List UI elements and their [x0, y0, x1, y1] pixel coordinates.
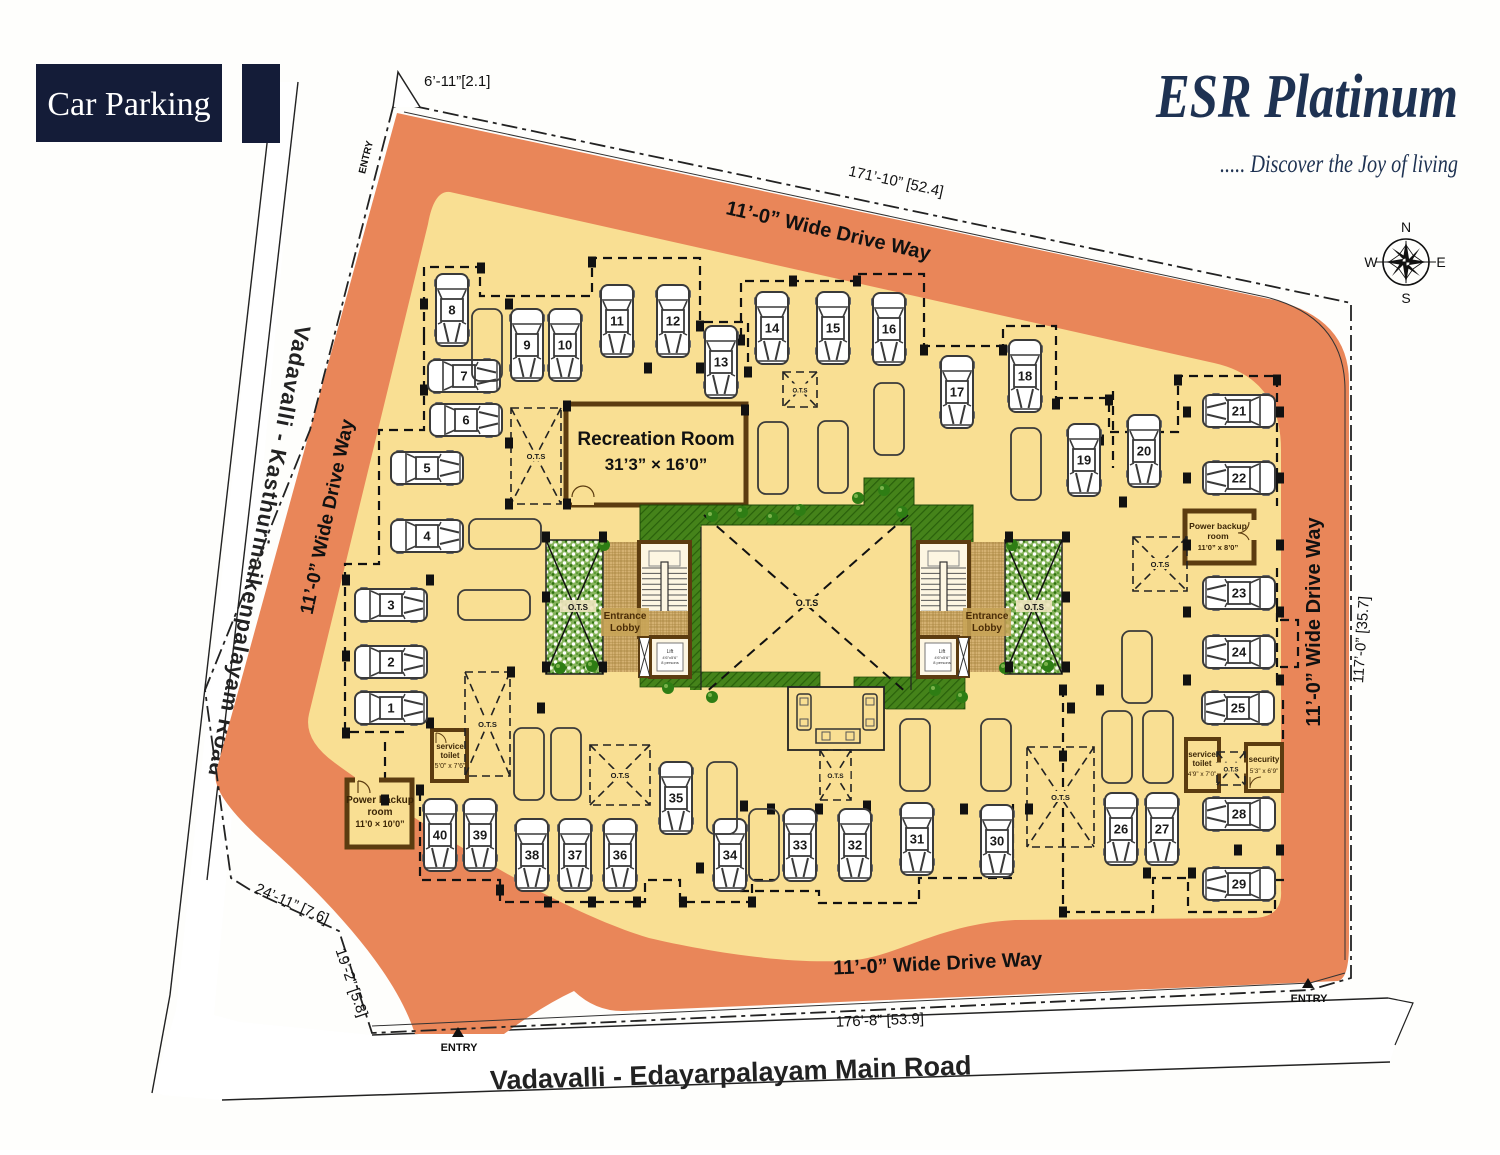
svg-text:20: 20: [1137, 444, 1151, 459]
svg-text:35: 35: [669, 791, 683, 806]
svg-text:32: 32: [848, 838, 862, 853]
svg-text:176’-8” [53.9]: 176’-8” [53.9]: [835, 1010, 924, 1031]
svg-text:O.T.S: O.T.S: [796, 598, 819, 608]
svg-text:27: 27: [1155, 822, 1169, 837]
svg-text:service: service: [436, 742, 464, 751]
svg-text:23: 23: [1232, 586, 1246, 601]
svg-text:O.T.S: O.T.S: [568, 603, 589, 612]
svg-text:11: 11: [610, 314, 624, 329]
svg-text:7: 7: [460, 369, 467, 384]
svg-text:11’0 × 10’0”: 11’0 × 10’0”: [355, 819, 404, 829]
svg-text:ESR Platinum: ESR Platinum: [1155, 63, 1458, 131]
svg-text:O.T.S: O.T.S: [1151, 560, 1170, 569]
svg-text:4’9” x 7’0”: 4’9” x 7’0”: [1188, 771, 1217, 778]
svg-text:31: 31: [910, 832, 924, 847]
svg-text:12: 12: [666, 314, 680, 329]
svg-text:6’-11”[2.1]: 6’-11”[2.1]: [424, 73, 490, 90]
svg-text:E: E: [1436, 254, 1445, 270]
svg-text:31’3” × 16’0”: 31’3” × 16’0”: [605, 455, 708, 474]
svg-text:11’-0” Wide Drive Way: 11’-0” Wide Drive Way: [1303, 517, 1325, 727]
svg-text:8 persons: 8 persons: [661, 660, 679, 665]
svg-text:5’3” x 6’9”: 5’3” x 6’9”: [1250, 768, 1279, 775]
svg-text:Car Parking: Car Parking: [47, 86, 210, 123]
svg-text:..... Discover the Joy of livi: ..... Discover the Joy of living: [1220, 151, 1458, 178]
svg-text:17: 17: [950, 385, 964, 400]
svg-text:O.T.S: O.T.S: [527, 452, 546, 461]
svg-text:3: 3: [387, 598, 394, 613]
svg-text:Power backup: Power backup: [1189, 521, 1247, 531]
svg-text:40: 40: [433, 828, 447, 843]
svg-text:21: 21: [1232, 404, 1246, 419]
svg-text:O.T.S: O.T.S: [478, 720, 497, 729]
svg-text:O.T.S: O.T.S: [792, 389, 807, 395]
svg-text:26: 26: [1114, 822, 1128, 837]
svg-text:34: 34: [723, 848, 738, 863]
svg-text:2: 2: [387, 655, 394, 670]
svg-text:13: 13: [714, 355, 728, 370]
svg-text:10: 10: [558, 338, 572, 353]
svg-text:N: N: [1401, 219, 1411, 235]
svg-text:room: room: [1207, 531, 1229, 541]
svg-text:Entrance: Entrance: [966, 611, 1009, 622]
svg-text:36: 36: [613, 848, 627, 863]
svg-text:security: security: [1249, 755, 1280, 764]
svg-text:24: 24: [1232, 645, 1247, 660]
svg-text:O.T.S: O.T.S: [1223, 768, 1238, 774]
svg-text:toilet: toilet: [1192, 759, 1211, 768]
svg-text:W: W: [1364, 254, 1378, 270]
svg-text:Lobby: Lobby: [610, 623, 640, 634]
svg-text:28: 28: [1232, 807, 1246, 822]
svg-text:18: 18: [1018, 369, 1032, 384]
svg-text:toilet: toilet: [440, 751, 459, 760]
svg-text:16: 16: [882, 322, 896, 337]
svg-text:8 persons: 8 persons: [933, 660, 951, 665]
svg-text:19: 19: [1077, 453, 1091, 468]
svg-text:S: S: [1401, 290, 1410, 306]
svg-text:8: 8: [448, 303, 455, 318]
svg-text:38: 38: [525, 848, 539, 863]
svg-text:9: 9: [523, 338, 530, 353]
svg-text:Power backup: Power backup: [346, 795, 414, 806]
svg-text:ENTRY: ENTRY: [1291, 993, 1329, 1005]
svg-text:O.T.S: O.T.S: [1024, 603, 1045, 612]
svg-text:4: 4: [423, 529, 431, 544]
svg-text:room: room: [368, 807, 393, 818]
svg-text:14: 14: [765, 321, 780, 336]
svg-text:33: 33: [793, 838, 807, 853]
svg-text:ENTRY: ENTRY: [441, 1042, 479, 1054]
svg-text:O.T.S: O.T.S: [827, 773, 844, 780]
svg-text:30: 30: [990, 834, 1004, 849]
svg-text:25: 25: [1231, 701, 1245, 716]
svg-text:5: 5: [423, 461, 430, 476]
svg-text:15: 15: [826, 321, 840, 336]
svg-text:Entrance: Entrance: [604, 611, 647, 622]
svg-text:Recreation Room: Recreation Room: [577, 429, 734, 450]
svg-text:37: 37: [568, 848, 582, 863]
svg-text:6: 6: [462, 413, 469, 428]
svg-text:22: 22: [1232, 471, 1246, 486]
svg-text:Lobby: Lobby: [972, 623, 1002, 634]
svg-text:O.T.S: O.T.S: [1051, 793, 1070, 802]
svg-text:29: 29: [1232, 877, 1246, 892]
svg-text:5’0” x 7’6”: 5’0” x 7’6”: [435, 763, 466, 770]
svg-text:39: 39: [473, 828, 487, 843]
svg-text:11’0” x 8’0”: 11’0” x 8’0”: [1198, 543, 1239, 552]
svg-text:service: service: [1188, 750, 1216, 759]
svg-text:O.T.S: O.T.S: [611, 771, 630, 780]
svg-text:1: 1: [387, 701, 394, 716]
